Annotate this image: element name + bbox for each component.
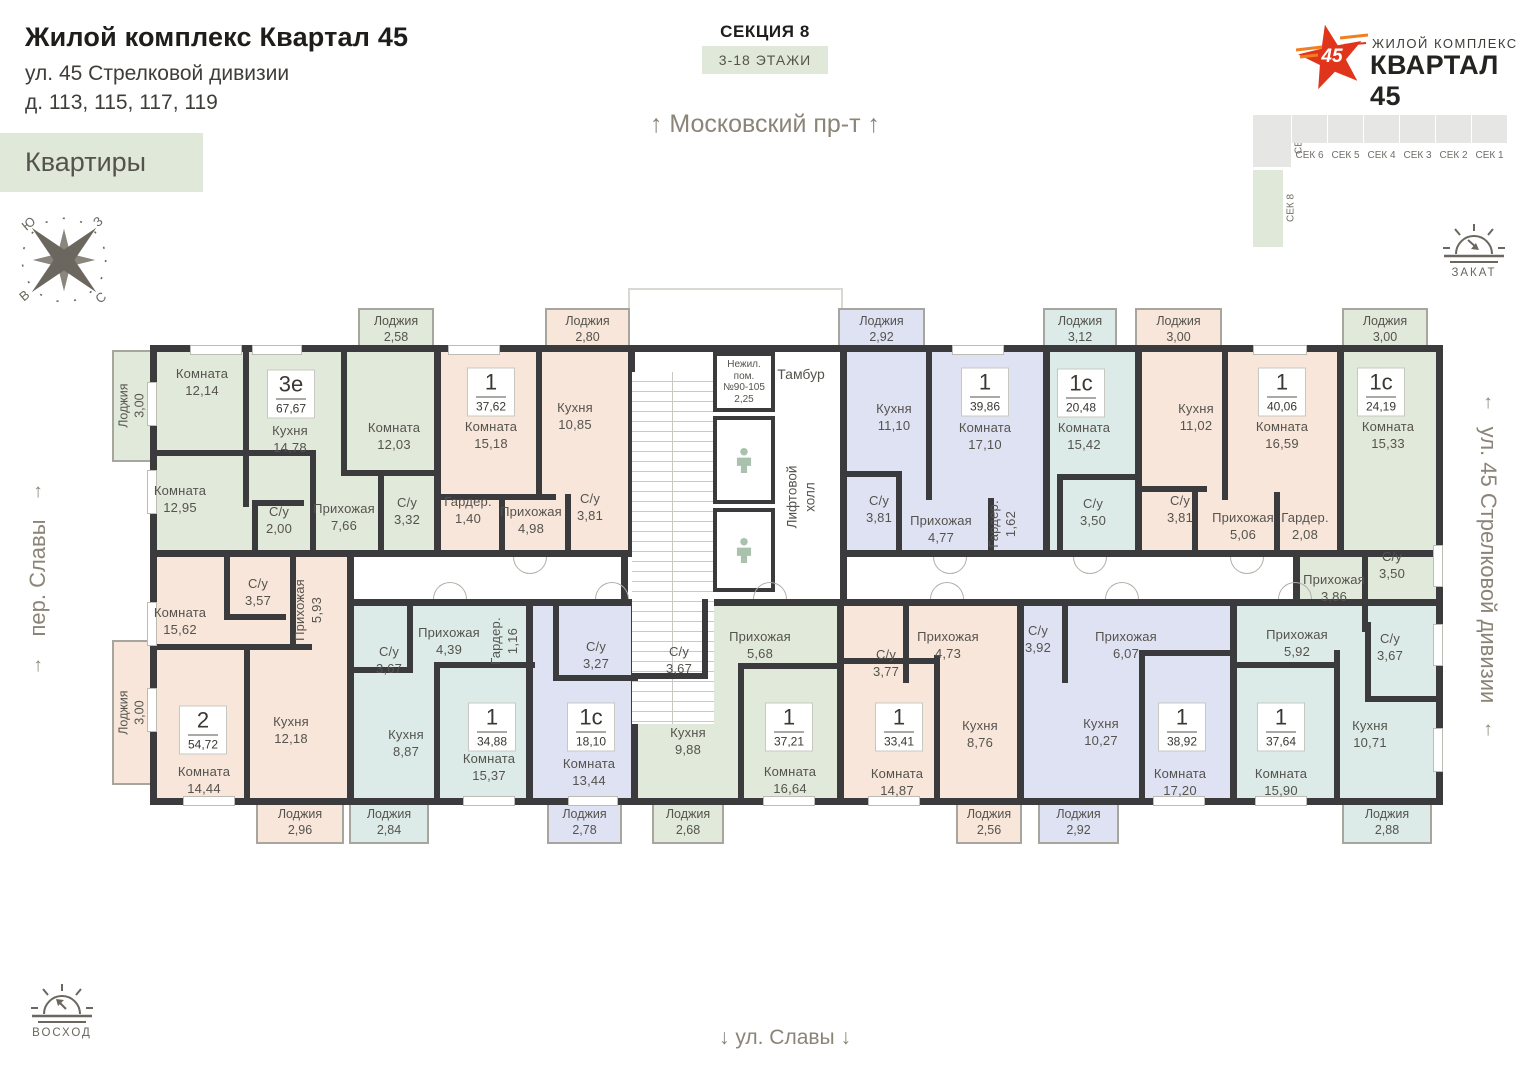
room-label: Кухня12,18 bbox=[273, 714, 309, 748]
interior-wall bbox=[553, 599, 559, 681]
room-area: 3,77 bbox=[873, 664, 899, 681]
window bbox=[568, 796, 618, 806]
room-name: Гардер. bbox=[986, 500, 1003, 548]
balcony-name: Лоджия bbox=[1156, 314, 1200, 330]
balcony-name: Лоджия bbox=[278, 807, 322, 823]
balcony-label: Лоджия3,00 bbox=[1363, 314, 1407, 345]
balcony: Лоджия2,88 bbox=[1342, 802, 1432, 844]
balcony-area: 3,00 bbox=[132, 384, 148, 428]
balcony-area: 2,96 bbox=[278, 823, 322, 839]
balcony: Лоджия2,56 bbox=[956, 802, 1022, 844]
room-area: 6,07 bbox=[1095, 646, 1157, 663]
apartment-total-area: 54,72 bbox=[188, 735, 218, 752]
elevator bbox=[713, 416, 775, 504]
balcony-label: Лоджия2,68 bbox=[666, 807, 710, 838]
interior-wall bbox=[341, 345, 347, 470]
interior-wall bbox=[378, 476, 384, 557]
door-arc bbox=[930, 582, 964, 599]
tambour-label: Тамбур bbox=[777, 366, 825, 382]
room-area: 3,81 bbox=[577, 508, 603, 525]
balcony-area: 3,00 bbox=[1156, 330, 1200, 346]
balcony-area: 2,68 bbox=[666, 823, 710, 839]
balcony-label: Лоджия2,96 bbox=[278, 807, 322, 838]
room-name: С/у bbox=[266, 504, 292, 521]
balcony-name: Лоджия bbox=[367, 807, 411, 823]
room-label: Прихожая5,93 bbox=[292, 579, 326, 641]
balcony-name: Лоджия bbox=[1056, 807, 1100, 823]
interior-wall bbox=[896, 471, 902, 557]
room-label: Комната16,64 bbox=[764, 764, 816, 798]
room-label: Комната17,10 bbox=[959, 420, 1011, 454]
interior-wall bbox=[1365, 696, 1443, 702]
door-arc bbox=[1073, 557, 1107, 574]
room-area: 7,66 bbox=[313, 518, 375, 535]
apartment-type: 2 bbox=[188, 710, 218, 732]
room-area: 1,40 bbox=[444, 511, 492, 528]
room-name: Прихожая bbox=[1212, 510, 1274, 527]
interior-wall bbox=[903, 599, 909, 683]
apartment-type-badge[interactable]: 140,06 bbox=[1258, 368, 1306, 417]
window bbox=[252, 345, 302, 355]
room-area: 3,50 bbox=[1080, 513, 1106, 530]
apartment-type-badge[interactable]: 133,41 bbox=[875, 703, 923, 752]
interior-wall bbox=[243, 345, 249, 507]
apartment-type-badge[interactable]: 137,64 bbox=[1257, 703, 1305, 752]
room-label: С/у3,81 bbox=[866, 493, 892, 527]
apartment-type-badge[interactable]: 1с18,10 bbox=[567, 703, 615, 752]
room-label: Кухня10,27 bbox=[1083, 716, 1119, 750]
room-name: Комната bbox=[176, 366, 228, 383]
balcony: Лоджия2,96 bbox=[256, 802, 344, 844]
room-name: Комната bbox=[1154, 766, 1206, 783]
interior-wall bbox=[224, 557, 230, 620]
window bbox=[147, 382, 157, 426]
room-name: Комната bbox=[959, 420, 1011, 437]
room-area: 9,88 bbox=[670, 742, 706, 759]
room-area: 10,85 bbox=[557, 417, 593, 434]
room-name: Прихожая bbox=[1266, 627, 1328, 644]
balcony-name: Лоджия bbox=[565, 314, 609, 330]
room-label: Гардер.1,40 bbox=[444, 494, 492, 528]
room-name: С/у bbox=[1025, 623, 1051, 640]
door-arc bbox=[1105, 582, 1139, 599]
interior-wall bbox=[1139, 650, 1145, 805]
interior-wall bbox=[565, 494, 571, 557]
room-name: Прихожая bbox=[1095, 629, 1157, 646]
room-label: Комната14,44 bbox=[178, 764, 230, 798]
balcony-name: Лоджия bbox=[562, 807, 606, 823]
room-name: Прихожая bbox=[292, 579, 309, 641]
room-label: Кухня11,02 bbox=[1178, 401, 1214, 435]
apartment-type: 1 bbox=[477, 707, 507, 729]
interior-wall bbox=[1274, 492, 1280, 557]
room-label: Прихожая5,92 bbox=[1266, 627, 1328, 661]
room-name: Прихожая bbox=[917, 629, 979, 646]
balcony-area: 2,58 bbox=[374, 330, 418, 346]
room-area: 13,44 bbox=[563, 773, 615, 790]
apartment-total-area: 40,06 bbox=[1267, 397, 1297, 414]
apartment-type: 1 bbox=[774, 707, 804, 729]
room-area: 15,37 bbox=[463, 768, 515, 785]
apartment-total-area: 39,86 bbox=[970, 397, 1000, 414]
room-area: 2,00 bbox=[266, 521, 292, 538]
apartment-total-area: 18,10 bbox=[576, 732, 606, 749]
room-name: С/у bbox=[583, 639, 609, 656]
balcony-label: Лоджия3,00 bbox=[116, 690, 147, 734]
apartment-type: 1 bbox=[1167, 707, 1197, 729]
room-label: С/у3,50 bbox=[1080, 496, 1106, 530]
room-name: С/у bbox=[376, 644, 402, 661]
room-label: С/у3,92 bbox=[1025, 623, 1051, 657]
apartment-type-badge[interactable]: 138,92 bbox=[1158, 703, 1206, 752]
room-label: Комната15,37 bbox=[463, 751, 515, 785]
interior-wall bbox=[738, 663, 839, 669]
room-label: Прихожая7,66 bbox=[313, 501, 375, 535]
room-label: Комната14,87 bbox=[871, 766, 923, 800]
nonresidential-room: Нежил.пом. №90-1052,25 bbox=[713, 352, 775, 412]
apartment-type-badge[interactable]: 3е67,67 bbox=[267, 370, 315, 419]
room-label: Комната15,42 bbox=[1058, 420, 1110, 454]
room-name: С/у bbox=[666, 644, 692, 661]
window bbox=[1433, 545, 1443, 587]
room-name: Прихожая bbox=[910, 513, 972, 530]
elevator-person-icon bbox=[734, 447, 754, 473]
room-name: Комната bbox=[563, 756, 615, 773]
balcony-label: Лоджия2,92 bbox=[859, 314, 903, 345]
balcony-area: 2,56 bbox=[967, 823, 1011, 839]
interior-wall bbox=[536, 345, 542, 500]
room-name: Гардер. bbox=[1281, 510, 1329, 527]
room-label: С/у3,27 bbox=[583, 639, 609, 673]
apartment-type: 1 bbox=[1266, 707, 1296, 729]
interior-wall bbox=[1057, 474, 1063, 557]
interior-wall bbox=[553, 675, 638, 681]
apartment-type-badge[interactable]: 1с20,48 bbox=[1057, 369, 1105, 418]
apartment-type-badge[interactable]: 137,21 bbox=[765, 703, 813, 752]
interior-wall bbox=[252, 500, 258, 557]
room-area: 1,62 bbox=[1003, 500, 1020, 548]
balcony-area: 2,88 bbox=[1365, 823, 1409, 839]
room-label: Гардер.1,16 bbox=[488, 617, 522, 665]
room-label: Гардер.2,08 bbox=[1281, 510, 1329, 544]
balcony-area: 2,80 bbox=[565, 330, 609, 346]
room-label: Прихожая4,98 bbox=[500, 504, 562, 538]
page: Жилой комплекс Квартал 45 ул. 45 Стрелко… bbox=[0, 0, 1529, 1080]
room-name: Прихожая bbox=[729, 629, 791, 646]
apartment-type: 1 bbox=[476, 372, 506, 394]
interior-wall bbox=[934, 655, 940, 805]
balcony-label: Лоджия2,56 bbox=[967, 807, 1011, 838]
balcony-label: Лоджия2,88 bbox=[1365, 807, 1409, 838]
room-area: 3,81 bbox=[866, 510, 892, 527]
room-name: Прихожая bbox=[313, 501, 375, 518]
room-area: 10,27 bbox=[1083, 733, 1119, 750]
balcony-name: Лоджия bbox=[666, 807, 710, 823]
room-name: Прихожая bbox=[418, 625, 480, 642]
room-name: Комната bbox=[871, 766, 923, 783]
interior-wall bbox=[840, 471, 902, 477]
room-area: 3,67 bbox=[666, 661, 692, 678]
room-label: Прихожая5,68 bbox=[729, 629, 791, 663]
room-area: 4,73 bbox=[917, 646, 979, 663]
room-area: 3,27 bbox=[583, 656, 609, 673]
room-name: Кухня bbox=[1083, 716, 1119, 733]
room-area: 5,92 bbox=[1266, 644, 1328, 661]
elevator-person-icon bbox=[734, 537, 754, 563]
room-area: 12,14 bbox=[176, 383, 228, 400]
room-name: Комната bbox=[465, 419, 517, 436]
room-area: 3,81 bbox=[1167, 510, 1193, 527]
window bbox=[1253, 345, 1307, 355]
room-name: Комната bbox=[1362, 419, 1414, 436]
room-label: С/у2,00 bbox=[266, 504, 292, 538]
room-name: Кухня bbox=[962, 718, 998, 735]
apartment-type-badge[interactable]: 134,88 bbox=[468, 703, 516, 752]
balcony-name: Лоджия bbox=[116, 384, 132, 428]
room-area: 15,33 bbox=[1362, 436, 1414, 453]
room-name: Кухня bbox=[1352, 718, 1388, 735]
room-label: Прихожая6,07 bbox=[1095, 629, 1157, 663]
balcony-label: Лоджия2,58 bbox=[374, 314, 418, 345]
interior-wall bbox=[738, 663, 744, 805]
room-name: С/у bbox=[1379, 549, 1405, 566]
room-name: С/у bbox=[873, 647, 899, 664]
apartment-total-area: 34,88 bbox=[477, 732, 507, 749]
room-label: С/у3,32 bbox=[394, 495, 420, 529]
window bbox=[190, 345, 242, 355]
room-label: Комната16,59 bbox=[1256, 419, 1308, 453]
balcony-label: Лоджия2,80 bbox=[565, 314, 609, 345]
room-area: 3,32 bbox=[394, 512, 420, 529]
room-name: Комната bbox=[764, 764, 816, 781]
room-area: 16,59 bbox=[1256, 436, 1308, 453]
room-area: 10,71 bbox=[1352, 735, 1388, 752]
interior-wall bbox=[407, 599, 413, 673]
apartment-type-badge[interactable]: 254,72 bbox=[179, 706, 227, 755]
room-area: 3,67 bbox=[376, 661, 402, 678]
room-label: С/у3,67 bbox=[1377, 631, 1403, 665]
room-label: Кухня9,88 bbox=[670, 725, 706, 759]
room-label: Комната12,95 bbox=[154, 483, 206, 517]
room-area: 14,87 bbox=[871, 783, 923, 800]
balcony-area: 2,92 bbox=[1056, 823, 1100, 839]
apartment-total-area: 24,19 bbox=[1366, 397, 1396, 414]
floor-plan: Нежил.пом. №90-1052,25 Тамбур Лифтовойхо… bbox=[0, 0, 1529, 1080]
apartment-total-area: 37,62 bbox=[476, 397, 506, 414]
room-name: Комната bbox=[178, 764, 230, 781]
room-area: 2,08 bbox=[1281, 527, 1329, 544]
room-name: Кухня bbox=[272, 423, 308, 440]
room-label: С/у3,67 bbox=[666, 644, 692, 678]
elevator-hall-label: Лифтовойхолл bbox=[783, 466, 818, 529]
interior-wall bbox=[1365, 622, 1371, 702]
room-area: 3,92 bbox=[1025, 640, 1051, 657]
apartment-total-area: 20,48 bbox=[1066, 398, 1096, 415]
room-label: Прихожая3,86 bbox=[1303, 572, 1365, 606]
balcony-name: Лоджия bbox=[116, 690, 132, 734]
balcony-name: Лоджия bbox=[967, 807, 1011, 823]
room-name: Гардер. bbox=[444, 494, 492, 511]
room-name: Кухня bbox=[876, 401, 912, 418]
room-label: Кухня10,71 bbox=[1352, 718, 1388, 752]
room-area: 17,10 bbox=[959, 437, 1011, 454]
balcony-name: Лоджия bbox=[374, 314, 418, 330]
room-name: Кухня bbox=[1178, 401, 1214, 418]
balcony-label: Лоджия2,92 bbox=[1056, 807, 1100, 838]
room-area: 3,86 bbox=[1303, 589, 1365, 606]
room-area: 15,90 bbox=[1255, 783, 1307, 800]
interior-wall bbox=[1230, 662, 1340, 668]
window bbox=[952, 345, 1004, 355]
room-label: Кухня8,76 bbox=[962, 718, 998, 752]
room-area: 4,39 bbox=[418, 642, 480, 659]
interior-wall bbox=[1057, 474, 1137, 480]
interior-wall bbox=[702, 599, 708, 679]
room-label: С/у3,50 bbox=[1379, 549, 1405, 583]
balcony-label: Лоджия3,00 bbox=[116, 384, 147, 428]
balcony-area: 3,00 bbox=[132, 690, 148, 734]
room-area: 12,03 bbox=[368, 437, 420, 454]
room-name: Комната bbox=[154, 605, 206, 622]
door-arc bbox=[513, 557, 547, 574]
logo-number: 45 bbox=[1321, 46, 1342, 68]
room-label: Комната13,44 bbox=[563, 756, 615, 790]
room-area: 14,44 bbox=[178, 781, 230, 798]
window bbox=[463, 796, 515, 806]
interior-wall bbox=[150, 644, 312, 650]
balcony-area: 3,00 bbox=[1363, 330, 1407, 346]
apartment-type: 1 bbox=[884, 707, 914, 729]
room-label: Комната15,33 bbox=[1362, 419, 1414, 453]
interior-wall bbox=[1222, 345, 1228, 500]
apartment-total-area: 38,92 bbox=[1167, 732, 1197, 749]
balcony-name: Лоджия bbox=[1058, 314, 1102, 330]
apartment-type: 1с bbox=[1066, 373, 1096, 395]
room-name: Кухня bbox=[388, 727, 424, 744]
room-area: 3,57 bbox=[245, 593, 271, 610]
room-label: С/у3,77 bbox=[873, 647, 899, 681]
room-area: 11,10 bbox=[876, 418, 912, 435]
interior-wall bbox=[926, 345, 932, 500]
room-name: Прихожая bbox=[500, 504, 562, 521]
room-label: Прихожая4,77 bbox=[910, 513, 972, 547]
room-area: 11,02 bbox=[1178, 418, 1214, 435]
room-label: С/у3,67 bbox=[376, 644, 402, 678]
room-name: С/у bbox=[1080, 496, 1106, 513]
balcony-area: 2,92 bbox=[859, 330, 903, 346]
room-name: С/у bbox=[394, 495, 420, 512]
room-area: 15,18 bbox=[465, 436, 517, 453]
room-name: Кухня bbox=[273, 714, 309, 731]
room-name: Комната bbox=[1256, 419, 1308, 436]
room-name: С/у bbox=[577, 491, 603, 508]
balcony: Лоджия2,78 bbox=[547, 802, 622, 844]
room-name: С/у bbox=[866, 493, 892, 510]
room-name: С/у bbox=[1377, 631, 1403, 648]
room-area: 15,42 bbox=[1058, 437, 1110, 454]
room-label: Кухня11,10 bbox=[876, 401, 912, 435]
apartment-total-area: 67,67 bbox=[276, 399, 306, 416]
balcony-label: Лоджия2,84 bbox=[367, 807, 411, 838]
door-arc bbox=[933, 557, 967, 574]
room-area: 8,87 bbox=[388, 744, 424, 761]
room-name: Кухня bbox=[557, 400, 593, 417]
balcony: Лоджия2,92 bbox=[1038, 802, 1119, 844]
room-label: С/у3,57 bbox=[245, 576, 271, 610]
balcony-name: Лоджия bbox=[1363, 314, 1407, 330]
interior-wall bbox=[244, 644, 250, 805]
apartment-type: 1 bbox=[970, 372, 1000, 394]
window bbox=[147, 688, 157, 732]
window bbox=[448, 345, 500, 355]
interior-wall bbox=[224, 614, 286, 620]
balcony-name: Лоджия bbox=[1365, 807, 1409, 823]
room-label: С/у3,81 bbox=[1167, 493, 1193, 527]
room-label: Прихожая5,06 bbox=[1212, 510, 1274, 544]
window bbox=[1433, 728, 1443, 772]
room-area: 5,68 bbox=[729, 646, 791, 663]
room-label: Комната12,03 bbox=[368, 420, 420, 454]
apartment-type: 3е bbox=[276, 374, 306, 396]
balcony: Лоджия3,00 bbox=[112, 350, 152, 462]
room-name: Прихожая bbox=[1303, 572, 1365, 589]
room-area: 17,20 bbox=[1154, 783, 1206, 800]
room-label: Гардер.1,62 bbox=[986, 500, 1020, 548]
apartment-type-badge[interactable]: 1с24,19 bbox=[1357, 368, 1405, 417]
door-arc bbox=[1230, 557, 1264, 574]
room-label: Комната15,62 bbox=[154, 605, 206, 639]
room-name: С/у bbox=[245, 576, 271, 593]
room-area: 1,16 bbox=[505, 617, 522, 665]
balcony: Лоджия2,68 bbox=[652, 802, 724, 844]
room-area: 16,64 bbox=[764, 781, 816, 798]
door-arc bbox=[433, 582, 467, 599]
room-label: Кухня8,87 bbox=[388, 727, 424, 761]
balcony-area: 2,84 bbox=[367, 823, 411, 839]
room-name: Кухня bbox=[670, 725, 706, 742]
room-name: Комната bbox=[154, 483, 206, 500]
room-label: Кухня14,78 bbox=[272, 423, 308, 457]
interior-wall bbox=[1334, 650, 1340, 805]
room-label: Прихожая4,73 bbox=[917, 629, 979, 663]
apartment-type-badge[interactable]: 139,86 bbox=[961, 368, 1009, 417]
apartment-type: 1с bbox=[576, 707, 606, 729]
room-label: Комната12,14 bbox=[176, 366, 228, 400]
room-area: 3,67 bbox=[1377, 648, 1403, 665]
room-name: Гардер. bbox=[488, 617, 505, 665]
room-area: 12,18 bbox=[273, 731, 309, 748]
interior-wall bbox=[341, 470, 438, 476]
room-area: 12,95 bbox=[154, 500, 206, 517]
room-name: С/у bbox=[1167, 493, 1193, 510]
window bbox=[1433, 624, 1443, 666]
room-area: 5,06 bbox=[1212, 527, 1274, 544]
elevator bbox=[713, 508, 775, 592]
interior-wall bbox=[434, 662, 440, 805]
room-name: Комната bbox=[463, 751, 515, 768]
room-area: 3,50 bbox=[1379, 566, 1405, 583]
room-area: 4,98 bbox=[500, 521, 562, 538]
room-area: 5,93 bbox=[309, 579, 326, 641]
room-name: Комната bbox=[368, 420, 420, 437]
apartment-type-badge[interactable]: 137,62 bbox=[467, 368, 515, 417]
room-label: Кухня10,85 bbox=[557, 400, 593, 434]
apartment-type: 1 bbox=[1267, 372, 1297, 394]
room-area: 4,77 bbox=[910, 530, 972, 547]
balcony-label: Лоджия3,12 bbox=[1058, 314, 1102, 345]
room-label: Прихожая4,39 bbox=[418, 625, 480, 659]
room-name: Комната bbox=[1255, 766, 1307, 783]
